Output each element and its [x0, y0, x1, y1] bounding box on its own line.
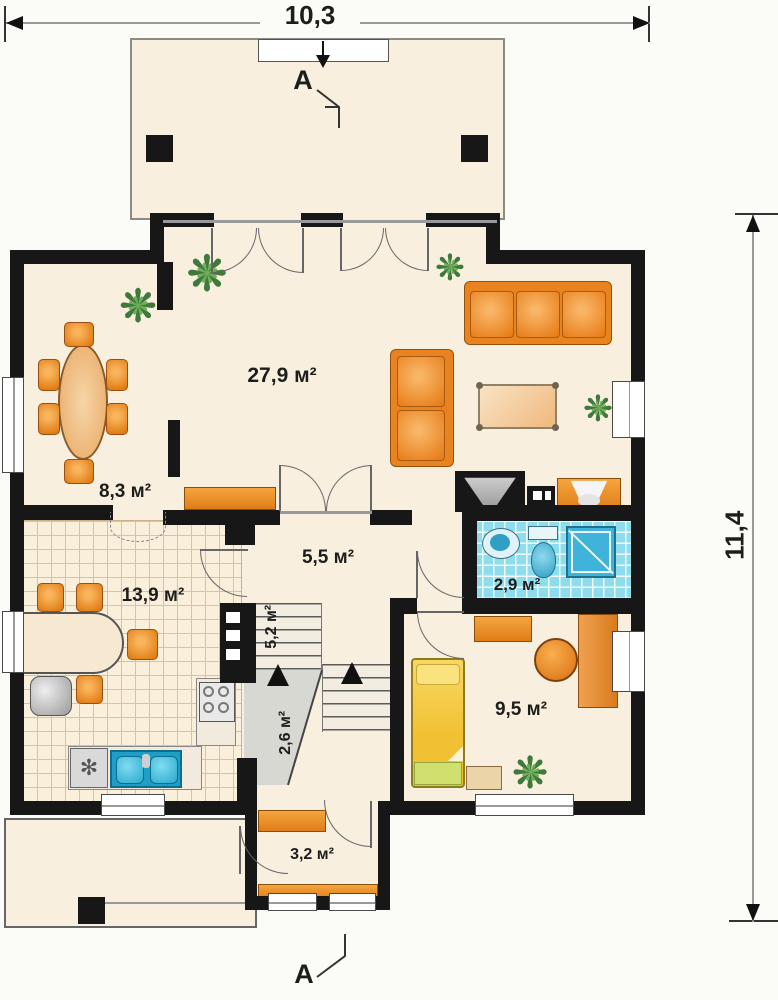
room-label-stairs: 5,2 м² [263, 591, 281, 663]
column [146, 135, 173, 162]
window [2, 377, 24, 473]
chimney-flue [226, 630, 240, 641]
window [329, 893, 376, 911]
blanket-fold [448, 746, 463, 761]
dining-chair [38, 403, 60, 435]
wall-segment [375, 896, 390, 910]
room-label-bedroom: 9,5 м² [471, 700, 571, 721]
wall-stub [168, 420, 180, 477]
wall-segment [163, 510, 280, 525]
terrace-bottom [4, 818, 257, 928]
plant-icon: ❋❋ [503, 750, 557, 798]
plant-icon: ❋❋ [430, 248, 470, 288]
terrace-door-threshold [163, 220, 497, 223]
washing-machine: ✻ [70, 748, 108, 788]
kitchen-stool [76, 675, 103, 704]
wall-segment [631, 437, 645, 633]
dining-table [58, 344, 108, 460]
dining-chair [106, 403, 128, 435]
column [461, 135, 488, 162]
wall-segment [572, 801, 645, 815]
stair-direction-arrow-icon [341, 662, 363, 684]
dimension-width-label: 10,3 [260, 1, 360, 30]
wall-segment [370, 510, 412, 525]
washbasin [482, 528, 520, 559]
section-cut-line-bottom [317, 934, 345, 977]
kitchen-stool [127, 629, 158, 660]
wall-segment [10, 250, 163, 264]
opening-dashed-arc [110, 512, 166, 542]
wall-segment [631, 690, 645, 815]
shower [566, 526, 616, 578]
dimension-arrow-icon [746, 215, 760, 232]
wall-segment [390, 605, 404, 805]
duct-vent [545, 491, 551, 500]
kitchen-peninsula-table [22, 612, 124, 674]
room-label-kitchen: 13,9 м² [103, 586, 203, 607]
washing-machine-drum-icon: ✻ [80, 755, 98, 781]
sofa-three-seat [464, 281, 612, 345]
dining-chair [64, 459, 94, 484]
window [475, 794, 574, 816]
dining-chair [38, 359, 60, 391]
window [2, 611, 24, 673]
kitchen-sink [110, 750, 182, 788]
kitchen-stool [76, 583, 103, 612]
wall-segment [245, 896, 270, 910]
faucet-icon [142, 754, 150, 768]
wall-segment [165, 801, 245, 815]
wall-stub [157, 262, 173, 310]
toilet-bowl [531, 542, 556, 578]
coffee-table [478, 384, 557, 429]
dining-chair [64, 322, 94, 347]
duct-vent [533, 491, 542, 500]
dimension-arrow-icon [746, 904, 760, 921]
room-label-bathroom: 2,9 м² [467, 576, 567, 595]
dresser [474, 616, 532, 642]
room-label-hall: 5,5 м² [278, 548, 378, 569]
living-hall-threshold [280, 511, 372, 514]
window [268, 893, 317, 911]
bed [411, 658, 465, 788]
wall-segment [237, 758, 257, 804]
toilet-tank [528, 526, 558, 540]
room-label-living: 27,9 м² [232, 364, 332, 387]
dining-chair [106, 359, 128, 391]
room-label-under-stairs: 2,6 м² [277, 697, 295, 769]
wall-pier [225, 523, 255, 545]
room-label-entry: 3,2 м² [262, 846, 362, 864]
blanket-green [414, 762, 462, 785]
office-chair [534, 638, 578, 682]
column [78, 897, 105, 924]
dimension-arrow-icon [633, 16, 650, 30]
pillow [416, 664, 460, 685]
terrace-step-edge [95, 902, 257, 904]
stair-direction-arrow-icon [267, 664, 289, 686]
wall-segment [10, 801, 103, 815]
window [612, 631, 645, 692]
chimney-flue [226, 612, 240, 623]
room-label-dining: 8,3 м² [75, 482, 175, 503]
kitchen-stool [37, 583, 64, 612]
wall-segment [462, 598, 632, 614]
fridge [30, 676, 72, 716]
window [101, 794, 165, 816]
dimension-line-vertical [752, 215, 754, 922]
wall-segment [316, 896, 330, 910]
wall-segment [10, 250, 24, 815]
window [612, 381, 645, 438]
floor-plan: ✻ ❋❋ ❋❋ ❋❋ ❋❋ ❋❋ [0, 0, 778, 1000]
wall-segment [486, 250, 645, 264]
chimney-flue [226, 649, 240, 660]
sideboard [184, 487, 276, 510]
sofa-two-seat [390, 349, 454, 467]
section-marker-bottom: A [287, 960, 321, 990]
wall-segment [631, 250, 645, 383]
side-table [466, 766, 502, 790]
wall-segment [378, 801, 390, 901]
stove [199, 682, 235, 722]
dimension-height-label: 11,4 [721, 495, 750, 575]
dimension-arrow-icon [6, 16, 23, 30]
wall-segment [24, 505, 113, 520]
wall-segment [462, 505, 632, 521]
section-marker-top: A [286, 66, 320, 96]
